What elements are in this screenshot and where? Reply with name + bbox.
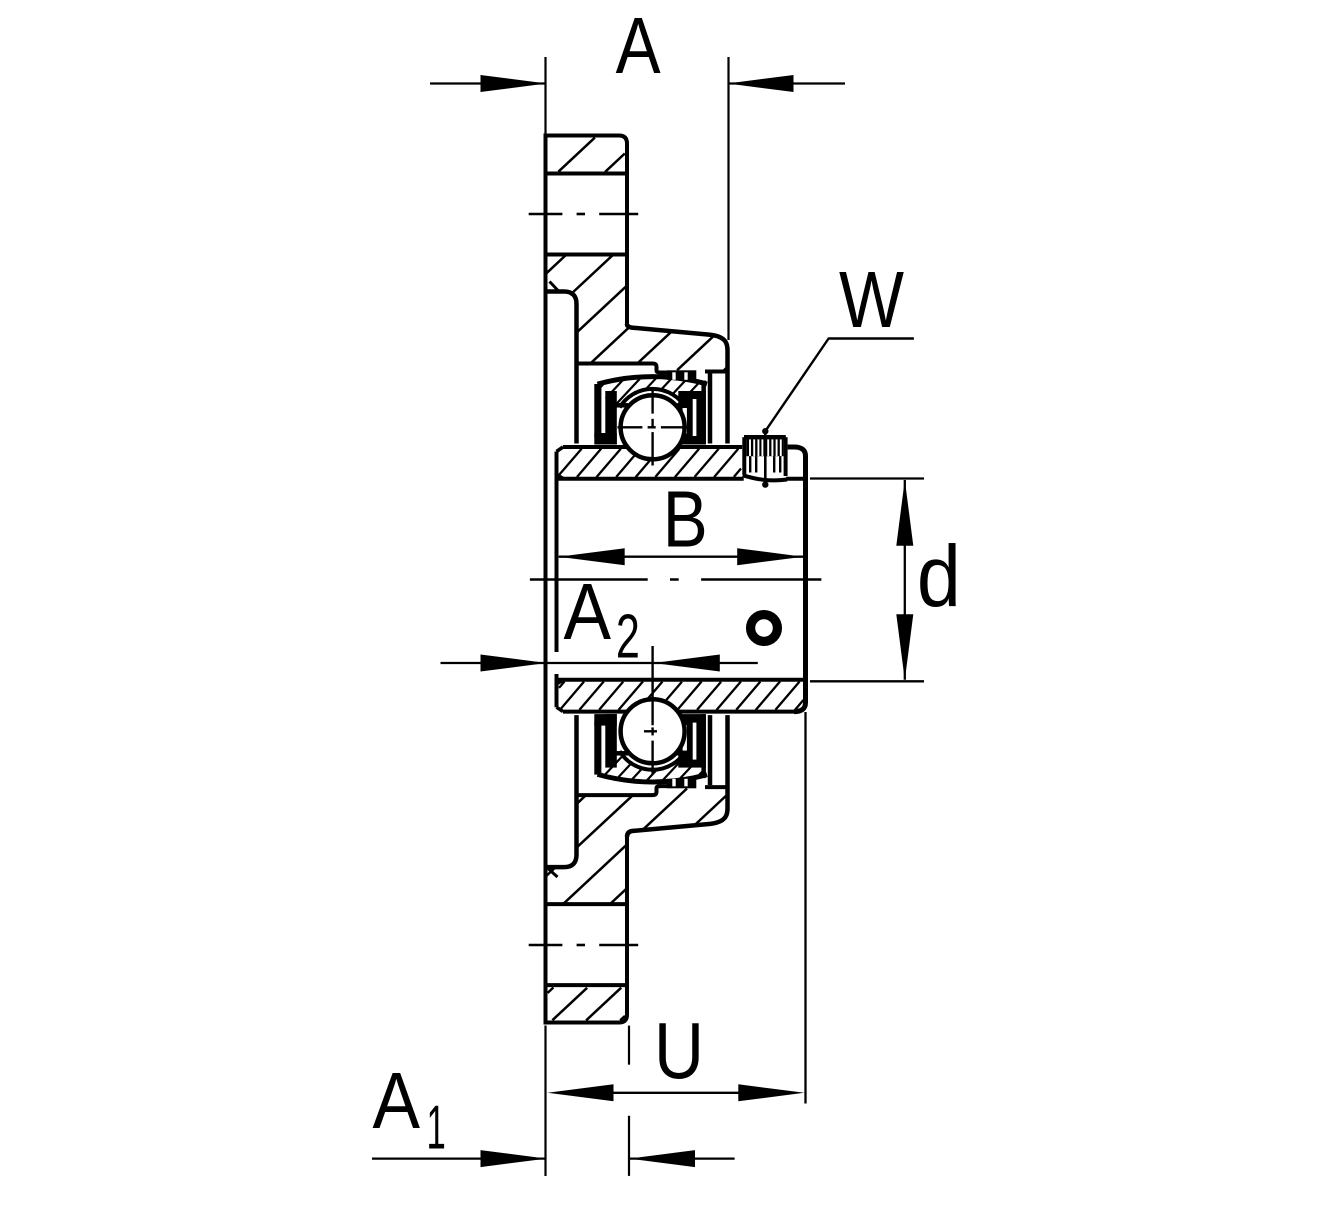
svg-text:B: B [663, 474, 708, 563]
svg-text:A: A [616, 1, 661, 90]
svg-text:W: W [839, 255, 904, 344]
svg-text:A: A [563, 567, 611, 656]
svg-text:d: d [917, 528, 961, 625]
svg-text:A: A [372, 1056, 420, 1145]
svg-text:1: 1 [426, 1094, 445, 1163]
svg-text:U: U [654, 1006, 704, 1095]
svg-text:2: 2 [616, 603, 640, 672]
